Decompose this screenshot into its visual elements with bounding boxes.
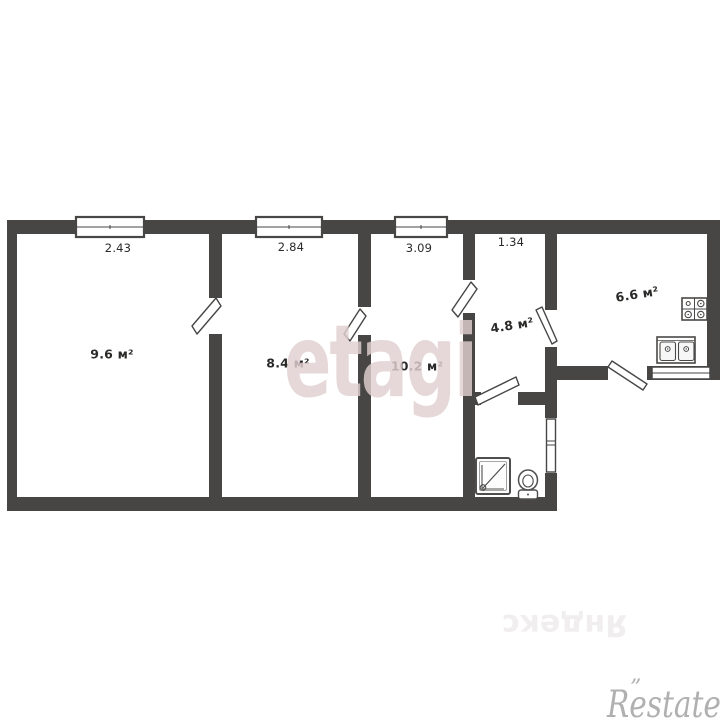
kitchen-right-wall bbox=[707, 220, 720, 380]
window-icon-room1 bbox=[76, 217, 144, 237]
floor-plan-page: { "plan": { "rooms": [ {"name": "room-1"… bbox=[0, 0, 725, 725]
room-1-area-label: 9.6 м² bbox=[90, 347, 133, 362]
dimension-label-hallway: 1.34 bbox=[498, 235, 524, 249]
dimension-label-room1: 2.43 bbox=[105, 241, 131, 255]
door-icon-bathroom bbox=[475, 377, 519, 405]
wall-room2-room3-lower bbox=[358, 335, 371, 497]
window-icon-room3 bbox=[395, 217, 447, 237]
wall-bath-right-lower bbox=[545, 473, 557, 511]
room-3-area-label: 10.2 м² bbox=[391, 359, 443, 374]
wall-room1-room2-upper bbox=[209, 234, 222, 298]
dimension-label-room3: 3.09 bbox=[406, 241, 432, 255]
left-wall bbox=[7, 220, 17, 511]
window-icon-room2 bbox=[256, 217, 322, 237]
wall-room3-hall-upper bbox=[463, 234, 475, 280]
window-icon-kitchen bbox=[652, 367, 710, 379]
bathroom-top-wall bbox=[518, 392, 545, 405]
bottom-wall bbox=[7, 497, 557, 511]
vent-shaft-icon bbox=[547, 419, 556, 472]
door-icon-room1 bbox=[192, 298, 221, 334]
doors bbox=[192, 282, 647, 405]
wall-room1-room2-lower bbox=[209, 334, 222, 497]
wall-hall-kitchen-mid bbox=[545, 347, 557, 418]
door-icon-kitchen-entry bbox=[608, 361, 647, 390]
kitchen-bottom-wall-left bbox=[557, 366, 608, 380]
wall-hall-kitchen-upper bbox=[545, 234, 557, 310]
floor-plan-svg bbox=[0, 0, 725, 725]
wall-room2-room3-upper bbox=[358, 234, 371, 307]
shower-icon bbox=[476, 458, 510, 494]
floor-plan: 2.43 2.84 3.09 1.34 9.6 м² 8.4 м² 10.2 м… bbox=[0, 0, 725, 725]
dimension-label-room2: 2.84 bbox=[278, 240, 304, 254]
sink-icon bbox=[657, 337, 695, 363]
wall-room3-hall-lower bbox=[463, 313, 475, 497]
toilet-icon bbox=[519, 470, 538, 499]
windows bbox=[76, 217, 710, 472]
room-2-area-label: 8.4 м² bbox=[266, 356, 309, 371]
stove-icon bbox=[682, 298, 707, 320]
door-icon-kitchen bbox=[536, 307, 557, 344]
door-icon-room3 bbox=[452, 282, 477, 317]
